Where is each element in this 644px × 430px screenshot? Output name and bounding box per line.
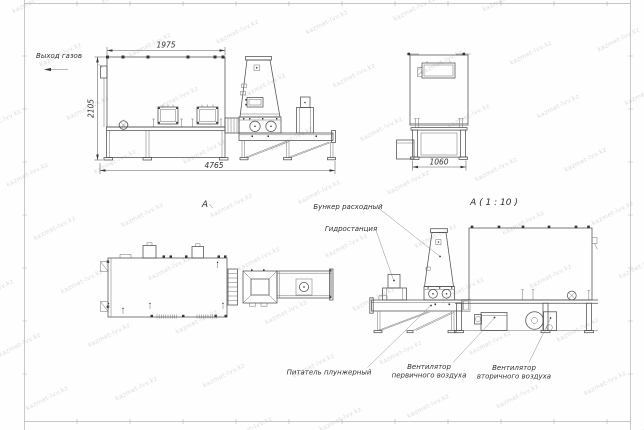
watermark-layer xyxy=(0,0,644,430)
dim-1975: 1975 xyxy=(156,41,175,50)
drawing-sheet: kazmet-lvv.kz kazmet-lvv.kz Выход газов xyxy=(0,0,644,430)
hydraulic-label: Гидростанция xyxy=(325,225,377,233)
detail-title: А ( 1 : 10 ) xyxy=(469,198,518,208)
gas-outlet-label: Выход газов xyxy=(36,52,82,60)
dim-2105: 2105 xyxy=(87,99,96,118)
svg-text:Вентилятор: Вентилятор xyxy=(407,363,451,371)
svg-text:первичного воздуха: первичного воздуха xyxy=(392,372,467,380)
svg-text:Вентилятор: Вентилятор xyxy=(492,364,536,372)
dim-4765: 4765 xyxy=(204,161,223,170)
hopper-label: Бункер расходный xyxy=(313,203,383,211)
feeder-label: Питатель плунжерный xyxy=(287,369,372,377)
dim-1060: 1060 xyxy=(429,158,448,167)
view-a-text: А xyxy=(201,200,208,210)
svg-text:вторичного воздуха: вторичного воздуха xyxy=(477,373,551,381)
